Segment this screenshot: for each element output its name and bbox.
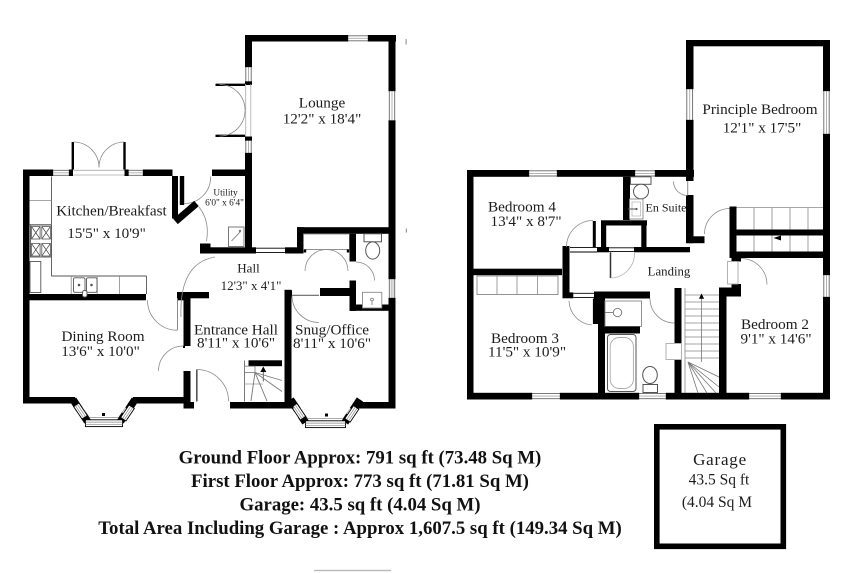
svg-text:Lounge: Lounge bbox=[299, 95, 346, 112]
svg-text:8'11" x 10'6": 8'11" x 10'6" bbox=[293, 335, 371, 352]
svg-text:6'0" x 6'4": 6'0" x 6'4" bbox=[205, 199, 244, 209]
svg-text:9'1" x 14'6": 9'1" x 14'6" bbox=[740, 330, 811, 347]
svg-text:13'4" x 8'7": 13'4" x 8'7" bbox=[490, 213, 561, 230]
svg-text:Utility: Utility bbox=[213, 189, 238, 199]
svg-text:8'11" x 10'6": 8'11" x 10'6" bbox=[197, 335, 275, 352]
svg-text:12'2" x 18'4": 12'2" x 18'4" bbox=[283, 110, 362, 127]
svg-text:Kitchen/Breakfast: Kitchen/Breakfast bbox=[56, 203, 167, 220]
svg-text:12'1" x 17'5": 12'1" x 17'5" bbox=[723, 119, 802, 136]
svg-text:13'6" x 10'0": 13'6" x 10'0" bbox=[61, 343, 140, 360]
svg-text:15'5" x 10'9": 15'5" x 10'9" bbox=[67, 225, 146, 242]
svg-text:Landing: Landing bbox=[648, 265, 691, 279]
svg-text:Hall: Hall bbox=[237, 261, 260, 276]
svg-text:En Suite: En Suite bbox=[646, 201, 687, 215]
svg-text:(4.04 Sq M: (4.04 Sq M bbox=[682, 494, 752, 511]
svg-text:Garage: Garage bbox=[693, 450, 747, 469]
svg-text:Principle Bedroom: Principle Bedroom bbox=[702, 101, 817, 118]
svg-text:43.5 Sq ft: 43.5 Sq ft bbox=[689, 472, 750, 489]
svg-text:First Floor Approx: 773 sq ft: First Floor Approx: 773 sq ft (71.81 Sq … bbox=[191, 471, 529, 492]
svg-text:11'5" x 10'9": 11'5" x 10'9" bbox=[488, 343, 566, 360]
svg-text:Garage: 43.5 sq ft (4.04 Sq M): Garage: 43.5 sq ft (4.04 Sq M) bbox=[239, 495, 480, 516]
svg-text:12'3" x 4'1": 12'3" x 4'1" bbox=[221, 278, 282, 293]
svg-text:Total Area Including Garage :: Total Area Including Garage : Approx 1,6… bbox=[98, 518, 622, 539]
svg-text:Ground Floor Approx: 791 sq ft: Ground Floor Approx: 791 sq ft (73.48 Sq… bbox=[179, 448, 542, 469]
